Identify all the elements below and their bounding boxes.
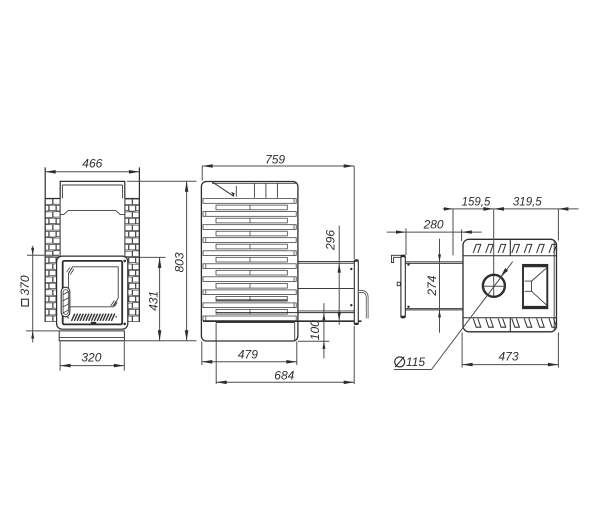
svg-text:100: 100 — [308, 320, 322, 340]
svg-text:319,5: 319,5 — [513, 197, 542, 209]
svg-text:684: 684 — [274, 368, 294, 382]
svg-text:803: 803 — [173, 252, 187, 272]
svg-text:296: 296 — [324, 230, 338, 251]
svg-text:759: 759 — [265, 152, 285, 166]
svg-text:274: 274 — [425, 275, 439, 296]
svg-text:280: 280 — [423, 218, 444, 232]
svg-text:370: 370 — [18, 275, 32, 295]
svg-text:479: 479 — [238, 347, 258, 361]
svg-text:115: 115 — [406, 355, 425, 369]
svg-text:466: 466 — [82, 157, 102, 171]
svg-text:320: 320 — [81, 350, 101, 364]
svg-text:473: 473 — [498, 349, 518, 363]
svg-text:431: 431 — [146, 291, 160, 311]
svg-text:159,5: 159,5 — [462, 197, 491, 209]
